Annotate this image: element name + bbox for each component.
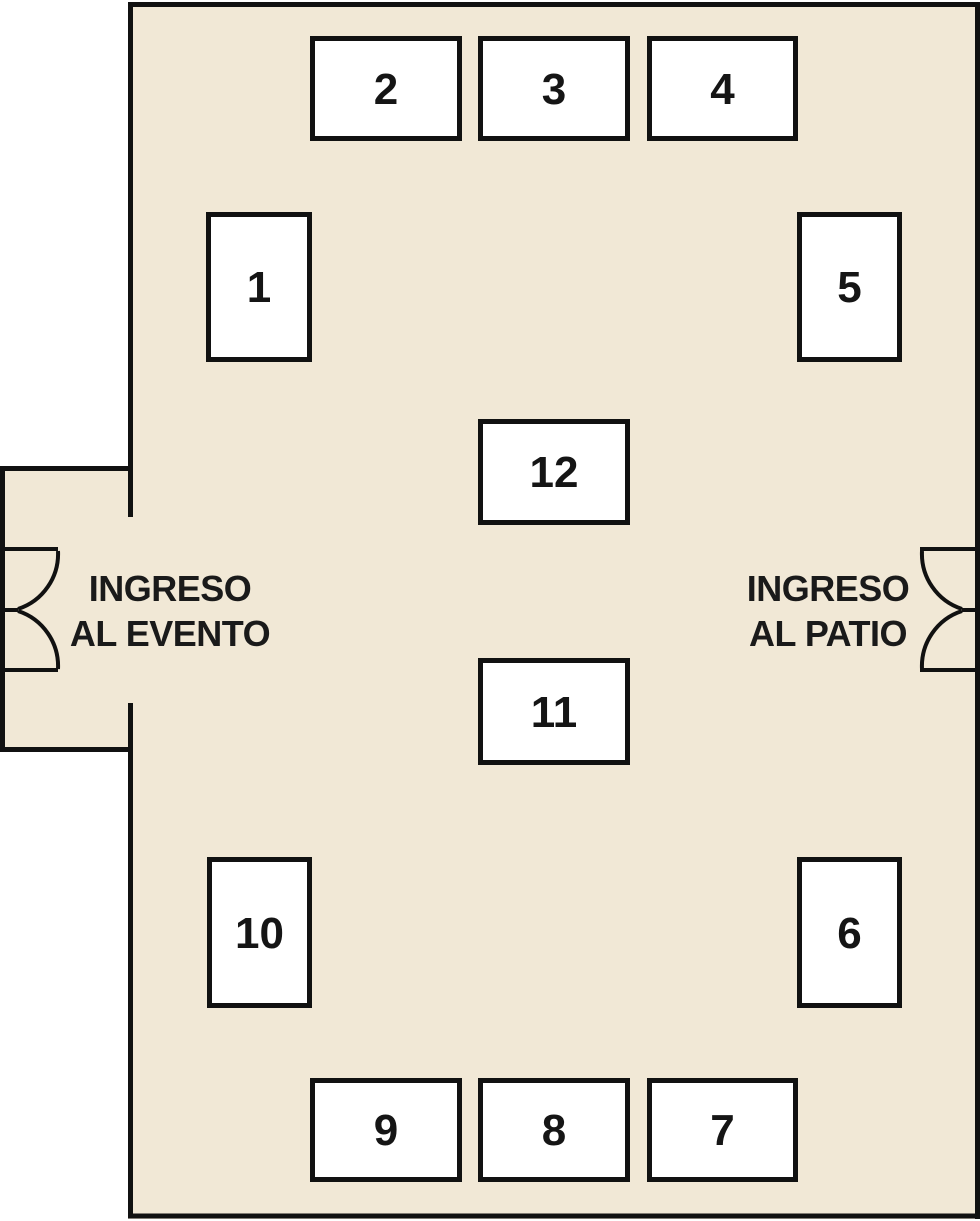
booth-9: 9 [310, 1078, 462, 1182]
booth-number: 8 [542, 1107, 566, 1153]
booth-number: 7 [710, 1107, 734, 1153]
booth-12: 12 [478, 419, 630, 525]
booth-number: 10 [235, 910, 284, 956]
entrance-line-2: AL EVENTO [52, 611, 288, 656]
booth-number: 1 [247, 264, 271, 310]
event-entrance-label: INGRESO AL EVENTO [52, 563, 288, 658]
booth-5: 5 [797, 212, 902, 362]
booth-7: 7 [647, 1078, 798, 1182]
booth-number: 11 [531, 689, 578, 735]
booth-10: 10 [207, 857, 312, 1008]
booth-number: 9 [374, 1107, 398, 1153]
booth-8: 8 [478, 1078, 630, 1182]
booth-number: 6 [837, 910, 861, 956]
booth-number: 2 [374, 66, 398, 112]
patio-entrance-label: INGRESO AL PATIO [710, 563, 946, 658]
booth-number: 3 [542, 66, 566, 112]
floor-plan: 1 2 3 4 5 6 7 8 9 10 11 12 INGRESO AL EV… [0, 0, 980, 1221]
booth-3: 3 [478, 36, 630, 141]
booth-number: 12 [530, 449, 579, 495]
booth-number: 4 [710, 66, 734, 112]
booth-2: 2 [310, 36, 462, 141]
booth-6: 6 [797, 857, 902, 1008]
booth-1: 1 [206, 212, 312, 362]
entrance-line-1: INGRESO [710, 566, 946, 611]
booth-4: 4 [647, 36, 798, 141]
booth-11: 11 [478, 658, 630, 765]
booth-number: 5 [837, 264, 861, 310]
entrance-line-2: AL PATIO [710, 611, 946, 656]
entrance-line-1: INGRESO [52, 566, 288, 611]
